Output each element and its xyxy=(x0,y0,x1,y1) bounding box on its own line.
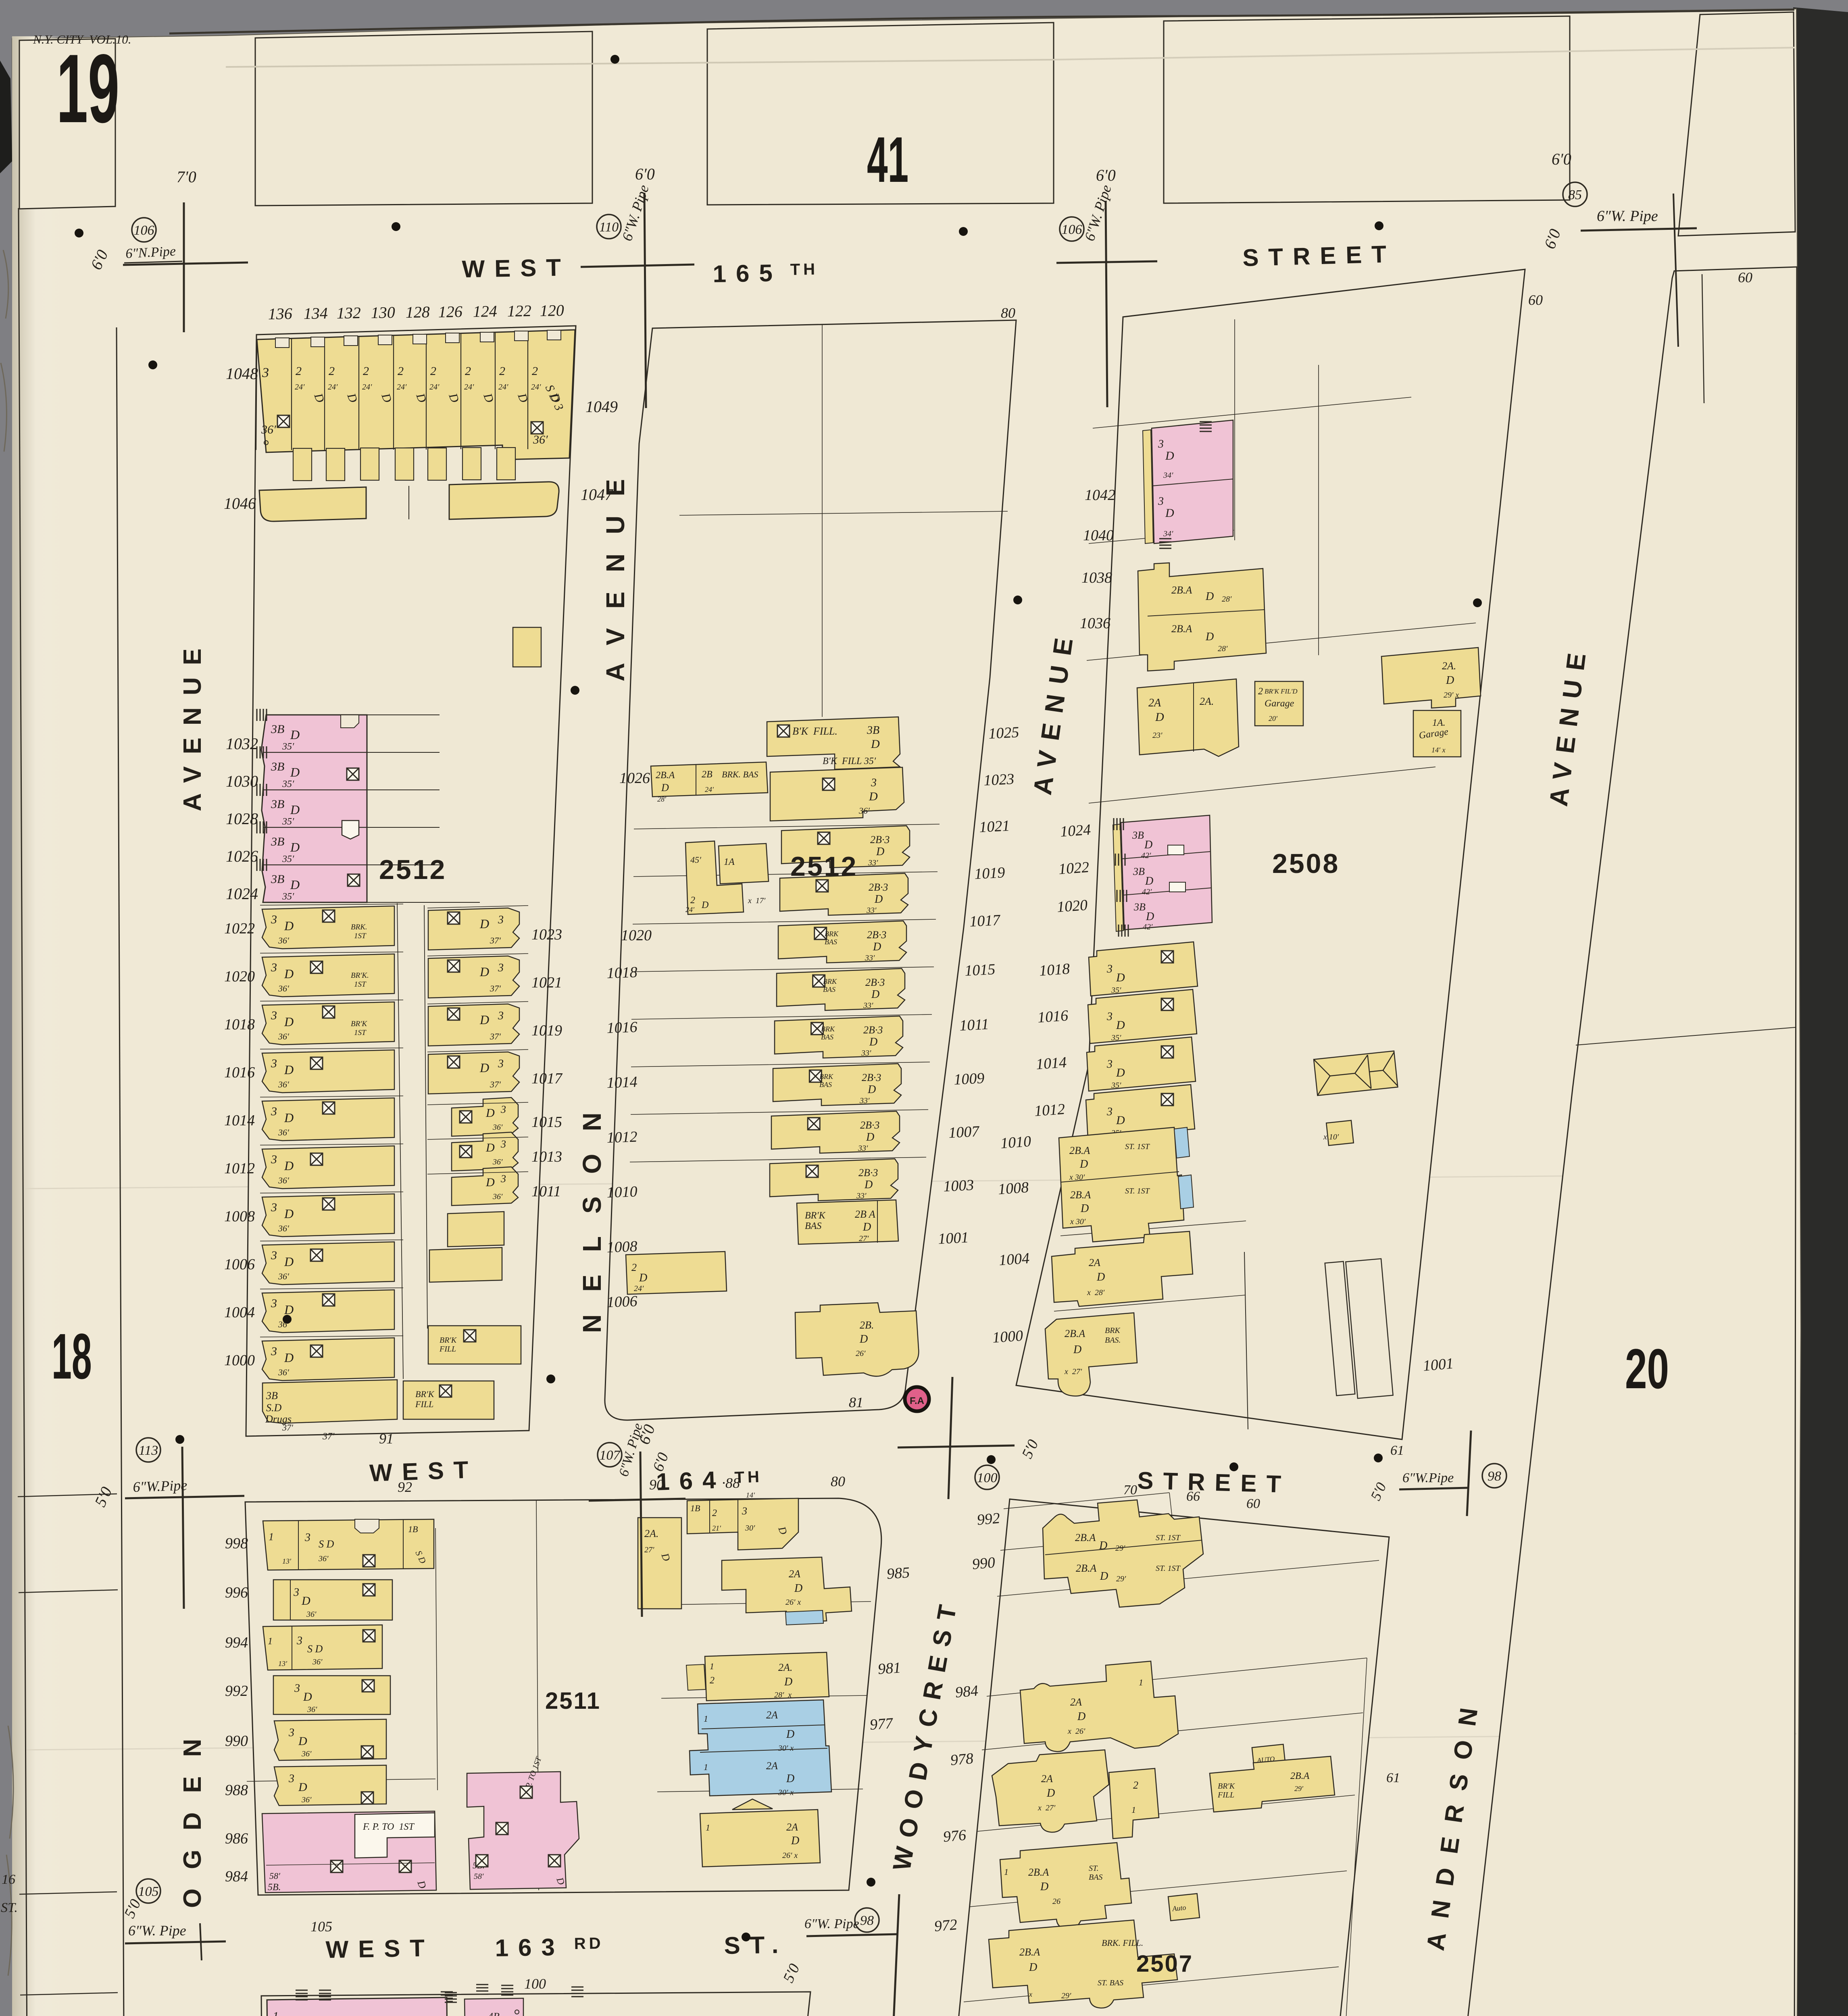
svg-text:D: D xyxy=(874,893,883,906)
svg-text:42′: 42′ xyxy=(1143,923,1153,931)
svg-text:998: 998 xyxy=(225,1535,248,1552)
svg-text:24′: 24′ xyxy=(685,906,695,914)
svg-text:3: 3 xyxy=(871,777,877,789)
svg-text:1015: 1015 xyxy=(964,961,996,979)
svg-text:1: 1 xyxy=(704,1762,708,1772)
svg-text:D: D xyxy=(479,1060,489,1075)
svg-text:1006: 1006 xyxy=(606,1293,638,1311)
svg-text:D: D xyxy=(479,1012,489,1027)
svg-text:D: D xyxy=(791,1835,799,1847)
svg-text:2B.A: 2B.A xyxy=(1069,1145,1090,1156)
svg-text:2B·3: 2B·3 xyxy=(865,977,885,988)
svg-text:977: 977 xyxy=(869,1715,894,1733)
svg-text:1046: 1046 xyxy=(224,494,256,512)
svg-text:27′: 27′ xyxy=(644,1545,654,1554)
svg-text:3: 3 xyxy=(271,1201,277,1214)
svg-text:981: 981 xyxy=(877,1659,902,1678)
svg-text:STREET: STREET xyxy=(1242,240,1396,271)
svg-text:1018: 1018 xyxy=(1039,960,1071,979)
svg-text:1023: 1023 xyxy=(983,771,1015,789)
svg-text:1000: 1000 xyxy=(992,1327,1024,1346)
svg-text:2A: 2A xyxy=(1089,1257,1100,1268)
svg-text:130: 130 xyxy=(371,303,395,322)
svg-text:3: 3 xyxy=(498,914,504,926)
svg-text:2: 2 xyxy=(329,364,335,378)
svg-text:132: 132 xyxy=(336,304,361,322)
svg-text:6″W.Pipe: 6″W.Pipe xyxy=(133,1477,188,1495)
svg-text:1022: 1022 xyxy=(224,920,255,937)
svg-text:x 10′: x 10′ xyxy=(1323,1133,1339,1141)
svg-text:3: 3 xyxy=(1158,495,1164,508)
svg-text:2: 2 xyxy=(430,364,436,378)
svg-text:2B.A: 2B.A xyxy=(1171,623,1192,635)
svg-text:34′: 34′ xyxy=(1163,471,1173,480)
svg-text:1A.: 1A. xyxy=(1432,718,1446,728)
svg-text:3: 3 xyxy=(262,365,269,380)
svg-text:3: 3 xyxy=(271,1153,277,1166)
svg-text:BAS.: BAS. xyxy=(1105,1336,1121,1345)
svg-text:136: 136 xyxy=(268,304,292,323)
svg-text:1: 1 xyxy=(1004,1867,1008,1877)
svg-text:2B.A: 2B.A xyxy=(1070,1189,1091,1201)
svg-text:6′0: 6′0 xyxy=(635,165,655,183)
svg-text:D: D xyxy=(284,1158,294,1173)
svg-text:1030: 1030 xyxy=(226,772,258,790)
svg-text:163: 163 xyxy=(495,1933,565,1962)
svg-text:992: 992 xyxy=(976,1510,1000,1529)
svg-text:ST. 1ST: ST. 1ST xyxy=(1156,1564,1181,1573)
svg-text:2B·3: 2B·3 xyxy=(867,929,886,941)
svg-text:2B·3: 2B·3 xyxy=(860,1119,879,1131)
svg-text:990: 990 xyxy=(225,1733,248,1749)
svg-text:985: 985 xyxy=(886,1564,910,1583)
svg-text:33′: 33′ xyxy=(859,1096,870,1105)
svg-text:2512: 2512 xyxy=(379,854,446,885)
svg-text:2B A: 2B A xyxy=(855,1208,875,1220)
svg-text:35′: 35′ xyxy=(1111,986,1121,995)
svg-text:60: 60 xyxy=(1246,1496,1260,1511)
svg-text:D: D xyxy=(298,1735,307,1748)
svg-text:D: D xyxy=(1116,971,1125,984)
svg-text:110: 110 xyxy=(599,220,619,235)
svg-text:S D: S D xyxy=(307,1643,323,1655)
svg-text:36′: 36′ xyxy=(301,1749,312,1758)
svg-text:1012: 1012 xyxy=(224,1160,255,1177)
svg-text:2512: 2512 xyxy=(790,851,858,882)
svg-text:28′: 28′ xyxy=(1218,644,1228,653)
svg-text:2508: 2508 xyxy=(1272,848,1340,879)
svg-text:1014: 1014 xyxy=(1035,1054,1067,1073)
svg-text:2B·3: 2B·3 xyxy=(869,881,888,893)
svg-text:984: 984 xyxy=(954,1682,979,1701)
svg-text:33′: 33′ xyxy=(858,1144,868,1153)
svg-text:1040: 1040 xyxy=(1083,527,1114,544)
svg-text:2B.A: 2B.A xyxy=(1290,1771,1310,1781)
svg-text:BRK. FILL.: BRK. FILL. xyxy=(1102,1938,1143,1948)
svg-text:2: 2 xyxy=(499,364,505,378)
svg-text:36′: 36′ xyxy=(278,1223,290,1233)
svg-text:2: 2 xyxy=(690,895,695,906)
svg-text:30′ x: 30′ x xyxy=(778,1788,794,1797)
svg-text:20′: 20′ xyxy=(1269,714,1278,723)
svg-text:BR′K: BR′K xyxy=(440,1336,457,1345)
svg-text:36′: 36′ xyxy=(318,1554,329,1563)
svg-text:1022: 1022 xyxy=(1058,859,1090,878)
svg-text:1019: 1019 xyxy=(974,864,1005,883)
svg-text:35′: 35′ xyxy=(1111,1081,1121,1090)
svg-text:D: D xyxy=(1116,1018,1125,1032)
svg-text:1012: 1012 xyxy=(606,1128,638,1146)
svg-text:13′: 13′ xyxy=(282,1557,292,1565)
svg-text:24′: 24′ xyxy=(429,383,440,392)
svg-text:3: 3 xyxy=(498,962,504,974)
svg-text:STREET: STREET xyxy=(1137,1467,1291,1498)
svg-text:1017: 1017 xyxy=(969,912,1001,930)
svg-text:37′: 37′ xyxy=(282,1422,294,1433)
svg-text:1011: 1011 xyxy=(959,1016,989,1034)
svg-text:3: 3 xyxy=(500,1104,506,1115)
svg-text:1: 1 xyxy=(710,1661,714,1671)
svg-text:2B·3: 2B·3 xyxy=(862,1072,881,1083)
svg-text:1042: 1042 xyxy=(1085,487,1115,504)
svg-text:D: D xyxy=(284,1350,294,1365)
svg-text:BAS: BAS xyxy=(805,1221,821,1231)
svg-text:2: 2 xyxy=(1133,1779,1138,1791)
svg-text:TH: TH xyxy=(734,1468,763,1487)
svg-text:61: 61 xyxy=(1390,1443,1404,1458)
svg-text:984: 984 xyxy=(225,1868,248,1885)
svg-text:2: 2 xyxy=(465,364,471,378)
svg-text:4B: 4B xyxy=(488,2011,500,2016)
svg-text:2507: 2507 xyxy=(1136,1951,1193,1977)
svg-text:BR′K.: BR′K. xyxy=(351,971,369,980)
svg-text:NELSON: NELSON xyxy=(577,1090,606,1333)
svg-text:D: D xyxy=(1205,590,1214,603)
svg-text:36′: 36′ xyxy=(278,1079,290,1089)
svg-text:992: 992 xyxy=(225,1683,248,1699)
svg-text:FILL: FILL xyxy=(415,1399,433,1409)
svg-text:1010: 1010 xyxy=(606,1183,638,1201)
svg-text:2: 2 xyxy=(710,1675,715,1686)
svg-text:D: D xyxy=(794,1582,802,1595)
svg-text:29′: 29′ xyxy=(1061,1991,1071,2000)
svg-text:TH: TH xyxy=(790,260,818,279)
svg-text:98: 98 xyxy=(1488,1469,1501,1484)
svg-text:6″N.Pipe: 6″N.Pipe xyxy=(125,244,176,261)
svg-text:AVENUE: AVENUE xyxy=(179,636,206,811)
svg-text:WEST: WEST xyxy=(462,254,571,283)
svg-text:1: 1 xyxy=(1139,1677,1143,1687)
svg-text:2A: 2A xyxy=(1148,697,1161,709)
svg-text:D: D xyxy=(284,918,294,933)
svg-text:2: 2 xyxy=(532,364,538,378)
svg-text:2B.A: 2B.A xyxy=(1171,584,1192,596)
svg-text:1049: 1049 xyxy=(585,398,618,416)
svg-text:ST. 1ST: ST. 1ST xyxy=(1125,1187,1150,1195)
svg-text:1B: 1B xyxy=(408,1524,418,1534)
svg-text:1032: 1032 xyxy=(226,735,258,753)
svg-text:2A: 2A xyxy=(1070,1696,1082,1708)
svg-text:2: 2 xyxy=(398,364,404,378)
svg-text:3B: 3B xyxy=(1133,901,1146,913)
svg-text:1016: 1016 xyxy=(606,1018,638,1037)
svg-text:122: 122 xyxy=(507,302,531,320)
svg-text:36′: 36′ xyxy=(278,1127,290,1137)
svg-text:113: 113 xyxy=(139,1443,158,1458)
svg-text:N.Y. CІTY VOL.10.: N.Y. CІTY VOL.10. xyxy=(33,32,131,46)
svg-text:Auto: Auto xyxy=(1171,1904,1186,1913)
svg-text:ST. BAS: ST. BAS xyxy=(1098,1979,1123,1987)
svg-text:D: D xyxy=(863,1221,871,1233)
svg-text:28′ x: 28′ x xyxy=(774,1691,792,1699)
svg-text:28′: 28′ xyxy=(1222,595,1232,604)
svg-text:37′: 37′ xyxy=(490,983,501,993)
svg-text:1026: 1026 xyxy=(226,847,258,865)
svg-text:1008: 1008 xyxy=(224,1208,255,1225)
svg-text:D: D xyxy=(290,877,300,892)
svg-text:24′: 24′ xyxy=(634,1284,644,1293)
svg-text:3: 3 xyxy=(271,961,277,974)
svg-text:16: 16 xyxy=(2,1872,15,1887)
svg-text:24′: 24′ xyxy=(531,383,541,392)
svg-text:996: 996 xyxy=(225,1584,248,1601)
svg-text:33′: 33′ xyxy=(861,1049,871,1058)
svg-text:2: 2 xyxy=(296,364,302,378)
svg-text:100: 100 xyxy=(977,1470,998,1485)
svg-text:36′: 36′ xyxy=(312,1658,323,1666)
svg-text:61: 61 xyxy=(1386,1770,1400,1785)
svg-text:x 28′: x 28′ xyxy=(1087,1288,1105,1297)
svg-text:3: 3 xyxy=(1106,963,1113,975)
svg-text:6″W.Pipe: 6″W.Pipe xyxy=(1402,1470,1454,1485)
svg-text:BR′K: BR′K xyxy=(351,1020,367,1028)
svg-text:3: 3 xyxy=(288,1727,294,1739)
svg-text:2B.A: 2B.A xyxy=(1075,1532,1096,1543)
svg-text:D: D xyxy=(1145,875,1153,887)
svg-text:20: 20 xyxy=(1625,1337,1669,1400)
svg-text:D: D xyxy=(661,782,669,793)
svg-text:35′: 35′ xyxy=(282,741,294,752)
svg-text:1026: 1026 xyxy=(619,770,650,787)
svg-text:1001: 1001 xyxy=(1422,1355,1454,1375)
svg-text:2A.: 2A. xyxy=(1442,660,1456,672)
svg-text:BR′K: BR′K xyxy=(1218,1782,1235,1791)
svg-text:D: D xyxy=(869,1036,877,1048)
svg-text:ST.: ST. xyxy=(1,1900,18,1915)
svg-text:165: 165 xyxy=(713,259,782,287)
svg-text:ST. 1ST: ST. 1ST xyxy=(1156,1533,1181,1542)
svg-text:124: 124 xyxy=(473,302,497,321)
svg-text:24′: 24′ xyxy=(705,785,714,793)
svg-text:BAS: BAS xyxy=(821,1033,833,1041)
svg-text:x: x xyxy=(1029,1990,1032,1998)
svg-text:26′ x: 26′ x xyxy=(782,1851,798,1860)
svg-text:1B: 1B xyxy=(690,1503,700,1513)
svg-text:D: D xyxy=(284,1254,294,1269)
svg-text:BAS: BAS xyxy=(823,985,835,993)
svg-text:986: 986 xyxy=(225,1830,248,1847)
svg-text:28′: 28′ xyxy=(657,795,667,803)
svg-text:36′: 36′ xyxy=(533,433,548,446)
svg-text:1ST: 1ST xyxy=(354,1029,367,1037)
svg-text:134: 134 xyxy=(303,304,328,323)
svg-text:1023: 1023 xyxy=(531,926,562,943)
svg-text:D: D xyxy=(1029,1961,1037,1974)
svg-text:2: 2 xyxy=(631,1262,637,1273)
svg-text:D: D xyxy=(303,1690,312,1704)
svg-text:D: D xyxy=(784,1676,792,1688)
svg-text:100: 100 xyxy=(524,1976,546,1992)
svg-text:35′: 35′ xyxy=(282,779,294,789)
svg-text:1028: 1028 xyxy=(226,810,258,828)
svg-text:D: D xyxy=(290,765,300,779)
svg-text:45′: 45′ xyxy=(690,855,702,865)
svg-text:1004: 1004 xyxy=(998,1250,1030,1269)
svg-text:2511: 2511 xyxy=(545,1688,601,1714)
svg-text:36′: 36′ xyxy=(492,1158,503,1166)
svg-text:3: 3 xyxy=(271,1009,277,1022)
svg-text:36′: 36′ xyxy=(261,423,276,436)
svg-text:F. P. TO 1ST: F. P. TO 1ST xyxy=(363,1822,415,1832)
svg-text:128: 128 xyxy=(405,303,430,321)
svg-text:S.D: S.D xyxy=(266,1402,282,1414)
svg-text:D: D xyxy=(284,1302,294,1317)
svg-text:6′0: 6′0 xyxy=(1096,166,1116,184)
svg-text:1048: 1048 xyxy=(226,364,258,383)
svg-text:33′: 33′ xyxy=(865,954,875,962)
svg-text:D: D xyxy=(298,1781,307,1794)
svg-text:2A.: 2A. xyxy=(1200,696,1214,707)
svg-text:36′: 36′ xyxy=(492,1192,503,1201)
svg-text:19: 19 xyxy=(56,34,119,143)
svg-text:D: D xyxy=(1165,506,1174,520)
svg-text:D: D xyxy=(1080,1202,1089,1215)
svg-text:BR′K: BR′K xyxy=(415,1389,435,1399)
svg-text:994: 994 xyxy=(225,1634,248,1651)
svg-text:120: 120 xyxy=(540,301,564,320)
svg-text:D: D xyxy=(1079,1158,1088,1170)
svg-text:3: 3 xyxy=(271,1297,277,1310)
svg-text:3: 3 xyxy=(271,1249,277,1262)
svg-text:3: 3 xyxy=(498,1010,504,1022)
svg-text:36′: 36′ xyxy=(858,806,870,816)
svg-text:1014: 1014 xyxy=(606,1073,638,1091)
svg-text:58′: 58′ xyxy=(269,1871,281,1881)
svg-text:FILL: FILL xyxy=(439,1345,456,1354)
svg-text:BRK.: BRK. xyxy=(351,923,367,931)
svg-text:2A: 2A xyxy=(766,1760,778,1772)
svg-text:58′: 58′ xyxy=(474,1872,484,1881)
svg-text:972: 972 xyxy=(933,1916,958,1935)
svg-text:D: D xyxy=(290,840,300,854)
svg-text:D: D xyxy=(871,988,879,1001)
svg-text:1024: 1024 xyxy=(226,885,258,903)
svg-text:2B.A: 2B.A xyxy=(656,770,675,781)
svg-text:81: 81 xyxy=(849,1394,863,1410)
svg-text:D: D xyxy=(479,916,489,931)
svg-text:1021: 1021 xyxy=(531,974,562,991)
svg-text:2B.A: 2B.A xyxy=(1065,1328,1085,1339)
svg-text:D: D xyxy=(873,941,881,953)
svg-text:80: 80 xyxy=(1001,305,1015,321)
svg-text:14′ x: 14′ x xyxy=(1431,746,1445,754)
svg-text:1ST: 1ST xyxy=(354,980,367,989)
svg-text:26′ x: 26′ x xyxy=(785,1598,801,1607)
svg-text:18: 18 xyxy=(52,1321,92,1393)
svg-text:RD: RD xyxy=(574,1935,604,1953)
svg-text:36′: 36′ xyxy=(306,1610,317,1619)
svg-text:1: 1 xyxy=(273,2010,279,2016)
svg-text:1012: 1012 xyxy=(1034,1101,1066,1120)
svg-text:1015: 1015 xyxy=(531,1114,562,1131)
svg-text:2A: 2A xyxy=(1041,1773,1053,1785)
svg-text:2A: 2A xyxy=(789,1568,800,1580)
svg-text:BRK: BRK xyxy=(825,930,839,938)
svg-text:1: 1 xyxy=(704,1714,708,1724)
svg-text:3: 3 xyxy=(1106,1010,1113,1023)
svg-text:3: 3 xyxy=(271,1057,277,1070)
svg-text:1: 1 xyxy=(706,1822,710,1833)
svg-text:1025: 1025 xyxy=(988,724,1019,742)
svg-text:1ST: 1ST xyxy=(354,932,367,940)
svg-text:D: D xyxy=(1116,1114,1125,1127)
svg-text:24′: 24′ xyxy=(295,383,305,392)
svg-text:x 26′: x 26′ xyxy=(1067,1727,1085,1736)
svg-text:ST.: ST. xyxy=(1089,1864,1099,1873)
svg-text:D: D xyxy=(1046,1787,1055,1799)
svg-text:1: 1 xyxy=(1131,1805,1136,1815)
svg-text:3B: 3B xyxy=(271,798,284,811)
svg-text:D: D xyxy=(1096,1271,1105,1283)
svg-text:D: D xyxy=(284,1206,294,1221)
svg-text:D: D xyxy=(1073,1343,1081,1356)
svg-text:126: 126 xyxy=(438,302,463,321)
svg-text:1036: 1036 xyxy=(1080,615,1110,632)
svg-text:D: D xyxy=(859,1333,868,1345)
svg-text:2: 2 xyxy=(1258,686,1263,697)
svg-text:BRK: BRK xyxy=(821,1025,835,1033)
svg-text:D: D xyxy=(864,1179,873,1191)
svg-text:34′: 34′ xyxy=(1163,529,1173,538)
svg-text:36′: 36′ xyxy=(278,935,290,946)
svg-text:D: D xyxy=(1100,1570,1108,1583)
svg-text:3B: 3B xyxy=(271,723,284,736)
svg-text:60: 60 xyxy=(1528,292,1543,308)
svg-text:2A: 2A xyxy=(766,1709,778,1721)
svg-text:6′0: 6′0 xyxy=(1552,150,1571,168)
svg-text:3: 3 xyxy=(500,1173,506,1185)
svg-text:2B·3: 2B·3 xyxy=(863,1024,883,1036)
svg-text:BRK. BAS: BRK. BAS xyxy=(722,769,758,779)
svg-text:42′: 42′ xyxy=(1142,887,1152,896)
svg-text:1001: 1001 xyxy=(938,1229,969,1248)
svg-text:3: 3 xyxy=(288,1772,294,1785)
svg-text:33′: 33′ xyxy=(856,1191,867,1200)
svg-text:978: 978 xyxy=(950,1750,974,1769)
svg-text:105: 105 xyxy=(310,1918,332,1935)
svg-text:26′: 26′ xyxy=(856,1349,866,1358)
svg-text:37′: 37′ xyxy=(322,1431,335,1442)
svg-text:D: D xyxy=(1446,674,1454,687)
svg-text:BRK: BRK xyxy=(823,977,837,985)
svg-text:1017: 1017 xyxy=(531,1070,563,1087)
svg-text:990: 990 xyxy=(971,1554,996,1573)
svg-text:27′: 27′ xyxy=(859,1234,869,1243)
svg-text:2B·3: 2B·3 xyxy=(858,1167,878,1179)
svg-text:37′: 37′ xyxy=(490,1079,501,1089)
svg-text:2A.: 2A. xyxy=(644,1528,658,1539)
svg-text:3: 3 xyxy=(271,1345,277,1358)
